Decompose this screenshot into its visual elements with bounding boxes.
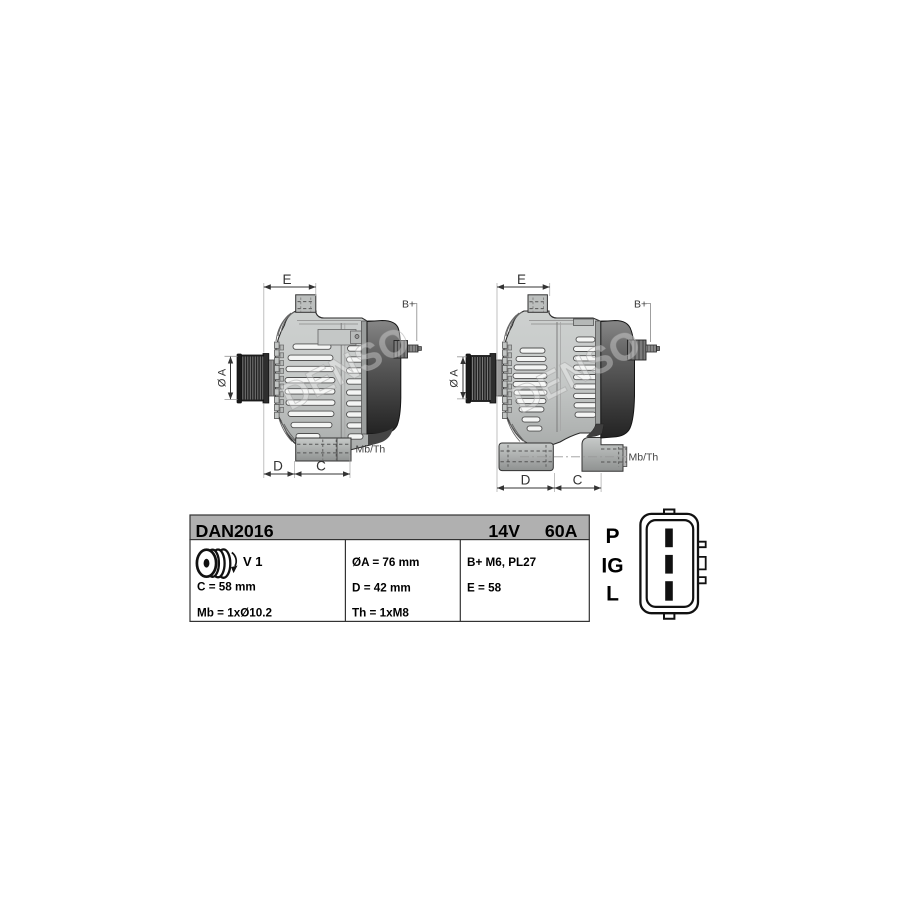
svg-text:C: C [573, 473, 583, 488]
svg-text:Ø A: Ø A [449, 369, 461, 388]
svg-text:ØA = 76 mm: ØA = 76 mm [352, 556, 419, 569]
svg-text:Mb/Th: Mb/Th [356, 444, 386, 456]
svg-text:60A: 60A [545, 521, 578, 541]
svg-text:B+ M6, PL27: B+ M6, PL27 [467, 556, 536, 569]
svg-text:Th = 1xM8: Th = 1xM8 [352, 607, 409, 620]
svg-text:Mb/Th: Mb/Th [629, 452, 659, 464]
svg-text:D: D [273, 459, 283, 474]
svg-text:E: E [282, 272, 291, 287]
svg-text:B+: B+ [634, 299, 647, 311]
svg-text:D: D [521, 473, 531, 488]
svg-text:C: C [316, 459, 326, 474]
svg-text:IG: IG [601, 555, 623, 578]
svg-text:Ø A: Ø A [217, 368, 229, 387]
svg-text:C = 58 mm: C = 58 mm [197, 581, 256, 594]
svg-text:Mb = 1xØ10.2: Mb = 1xØ10.2 [197, 607, 273, 620]
svg-text:B+: B+ [402, 299, 415, 311]
svg-text:E: E [517, 272, 526, 287]
svg-text:E = 58: E = 58 [467, 582, 502, 595]
svg-text:P: P [605, 525, 619, 548]
svg-text:14V: 14V [488, 521, 520, 541]
svg-text:DAN2016: DAN2016 [196, 521, 274, 541]
svg-text:L: L [606, 583, 619, 606]
svg-text:V 1: V 1 [243, 554, 263, 569]
svg-text:D = 42 mm: D = 42 mm [352, 582, 411, 595]
